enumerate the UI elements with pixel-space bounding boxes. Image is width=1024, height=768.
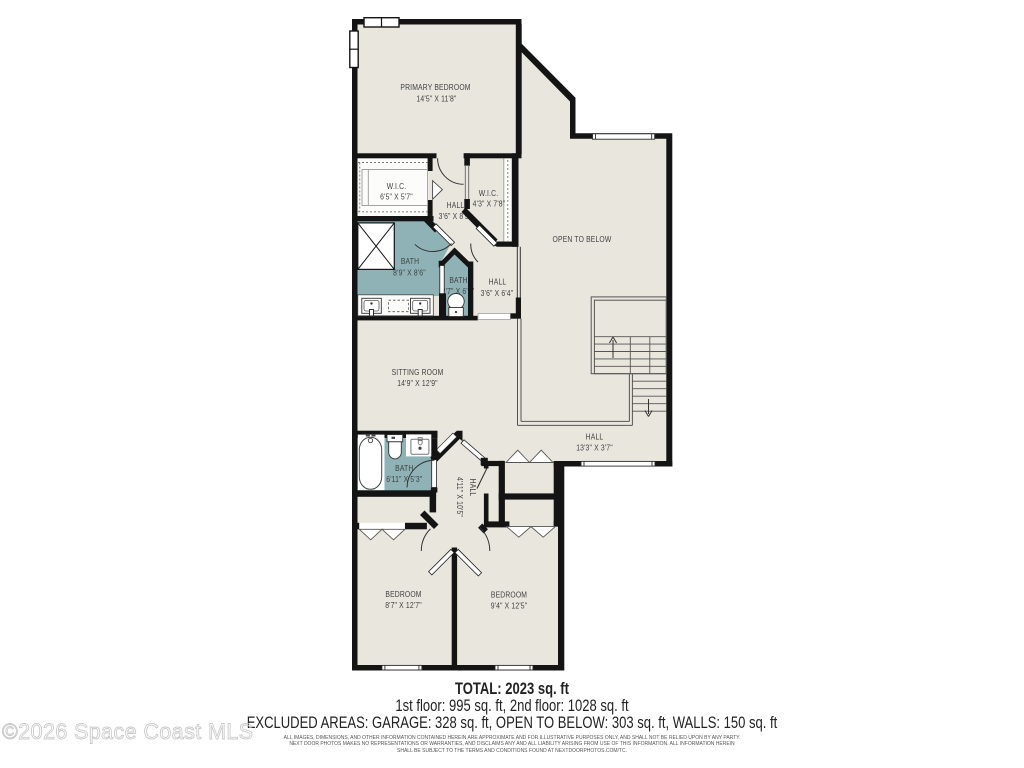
svg-text:BEDROOM: BEDROOM: [491, 590, 527, 600]
svg-text:BATH: BATH: [449, 275, 467, 285]
svg-text:W.I.C.: W.I.C.: [387, 181, 406, 191]
svg-text:OPEN TO BELOW: OPEN TO BELOW: [553, 234, 612, 244]
svg-text:8'9" X 8'6": 8'9" X 8'6": [393, 268, 426, 278]
svg-text:4'3" X 7'8": 4'3" X 7'8": [473, 199, 506, 209]
svg-text:3'6" X 6'4": 3'6" X 6'4": [481, 288, 514, 298]
svg-text:BEDROOM: BEDROOM: [385, 589, 421, 599]
svg-text:13'3" X 3'7": 13'3" X 3'7": [576, 443, 613, 453]
svg-text:BATH: BATH: [401, 256, 419, 266]
svg-text:HALL: HALL: [489, 277, 507, 287]
svg-text:6'11" X 5'3": 6'11" X 5'3": [386, 474, 422, 484]
svg-text:8'7" X 12'7": 8'7" X 12'7": [385, 600, 422, 610]
svg-text:14'9" X 12'9": 14'9" X 12'9": [397, 378, 438, 388]
svg-text:PRIMARY BEDROOM: PRIMARY BEDROOM: [400, 82, 470, 92]
svg-text:HALL: HALL: [586, 432, 604, 442]
svg-text:14'5" X 11'8": 14'5" X 11'8": [416, 94, 456, 104]
svg-text:SITTING ROOM: SITTING ROOM: [392, 367, 444, 377]
svg-text:W.I.C.: W.I.C.: [479, 188, 498, 198]
svg-text:HALL: HALL: [468, 479, 478, 497]
svg-text:4'11" X 10'5": 4'11" X 10'5": [455, 477, 465, 517]
svg-text:BATH: BATH: [395, 464, 413, 474]
svg-text:HALL: HALL: [447, 200, 465, 210]
svg-text:9'4" X 12'5": 9'4" X 12'5": [491, 601, 528, 611]
svg-text:6'5" X 5'7": 6'5" X 5'7": [380, 192, 413, 202]
